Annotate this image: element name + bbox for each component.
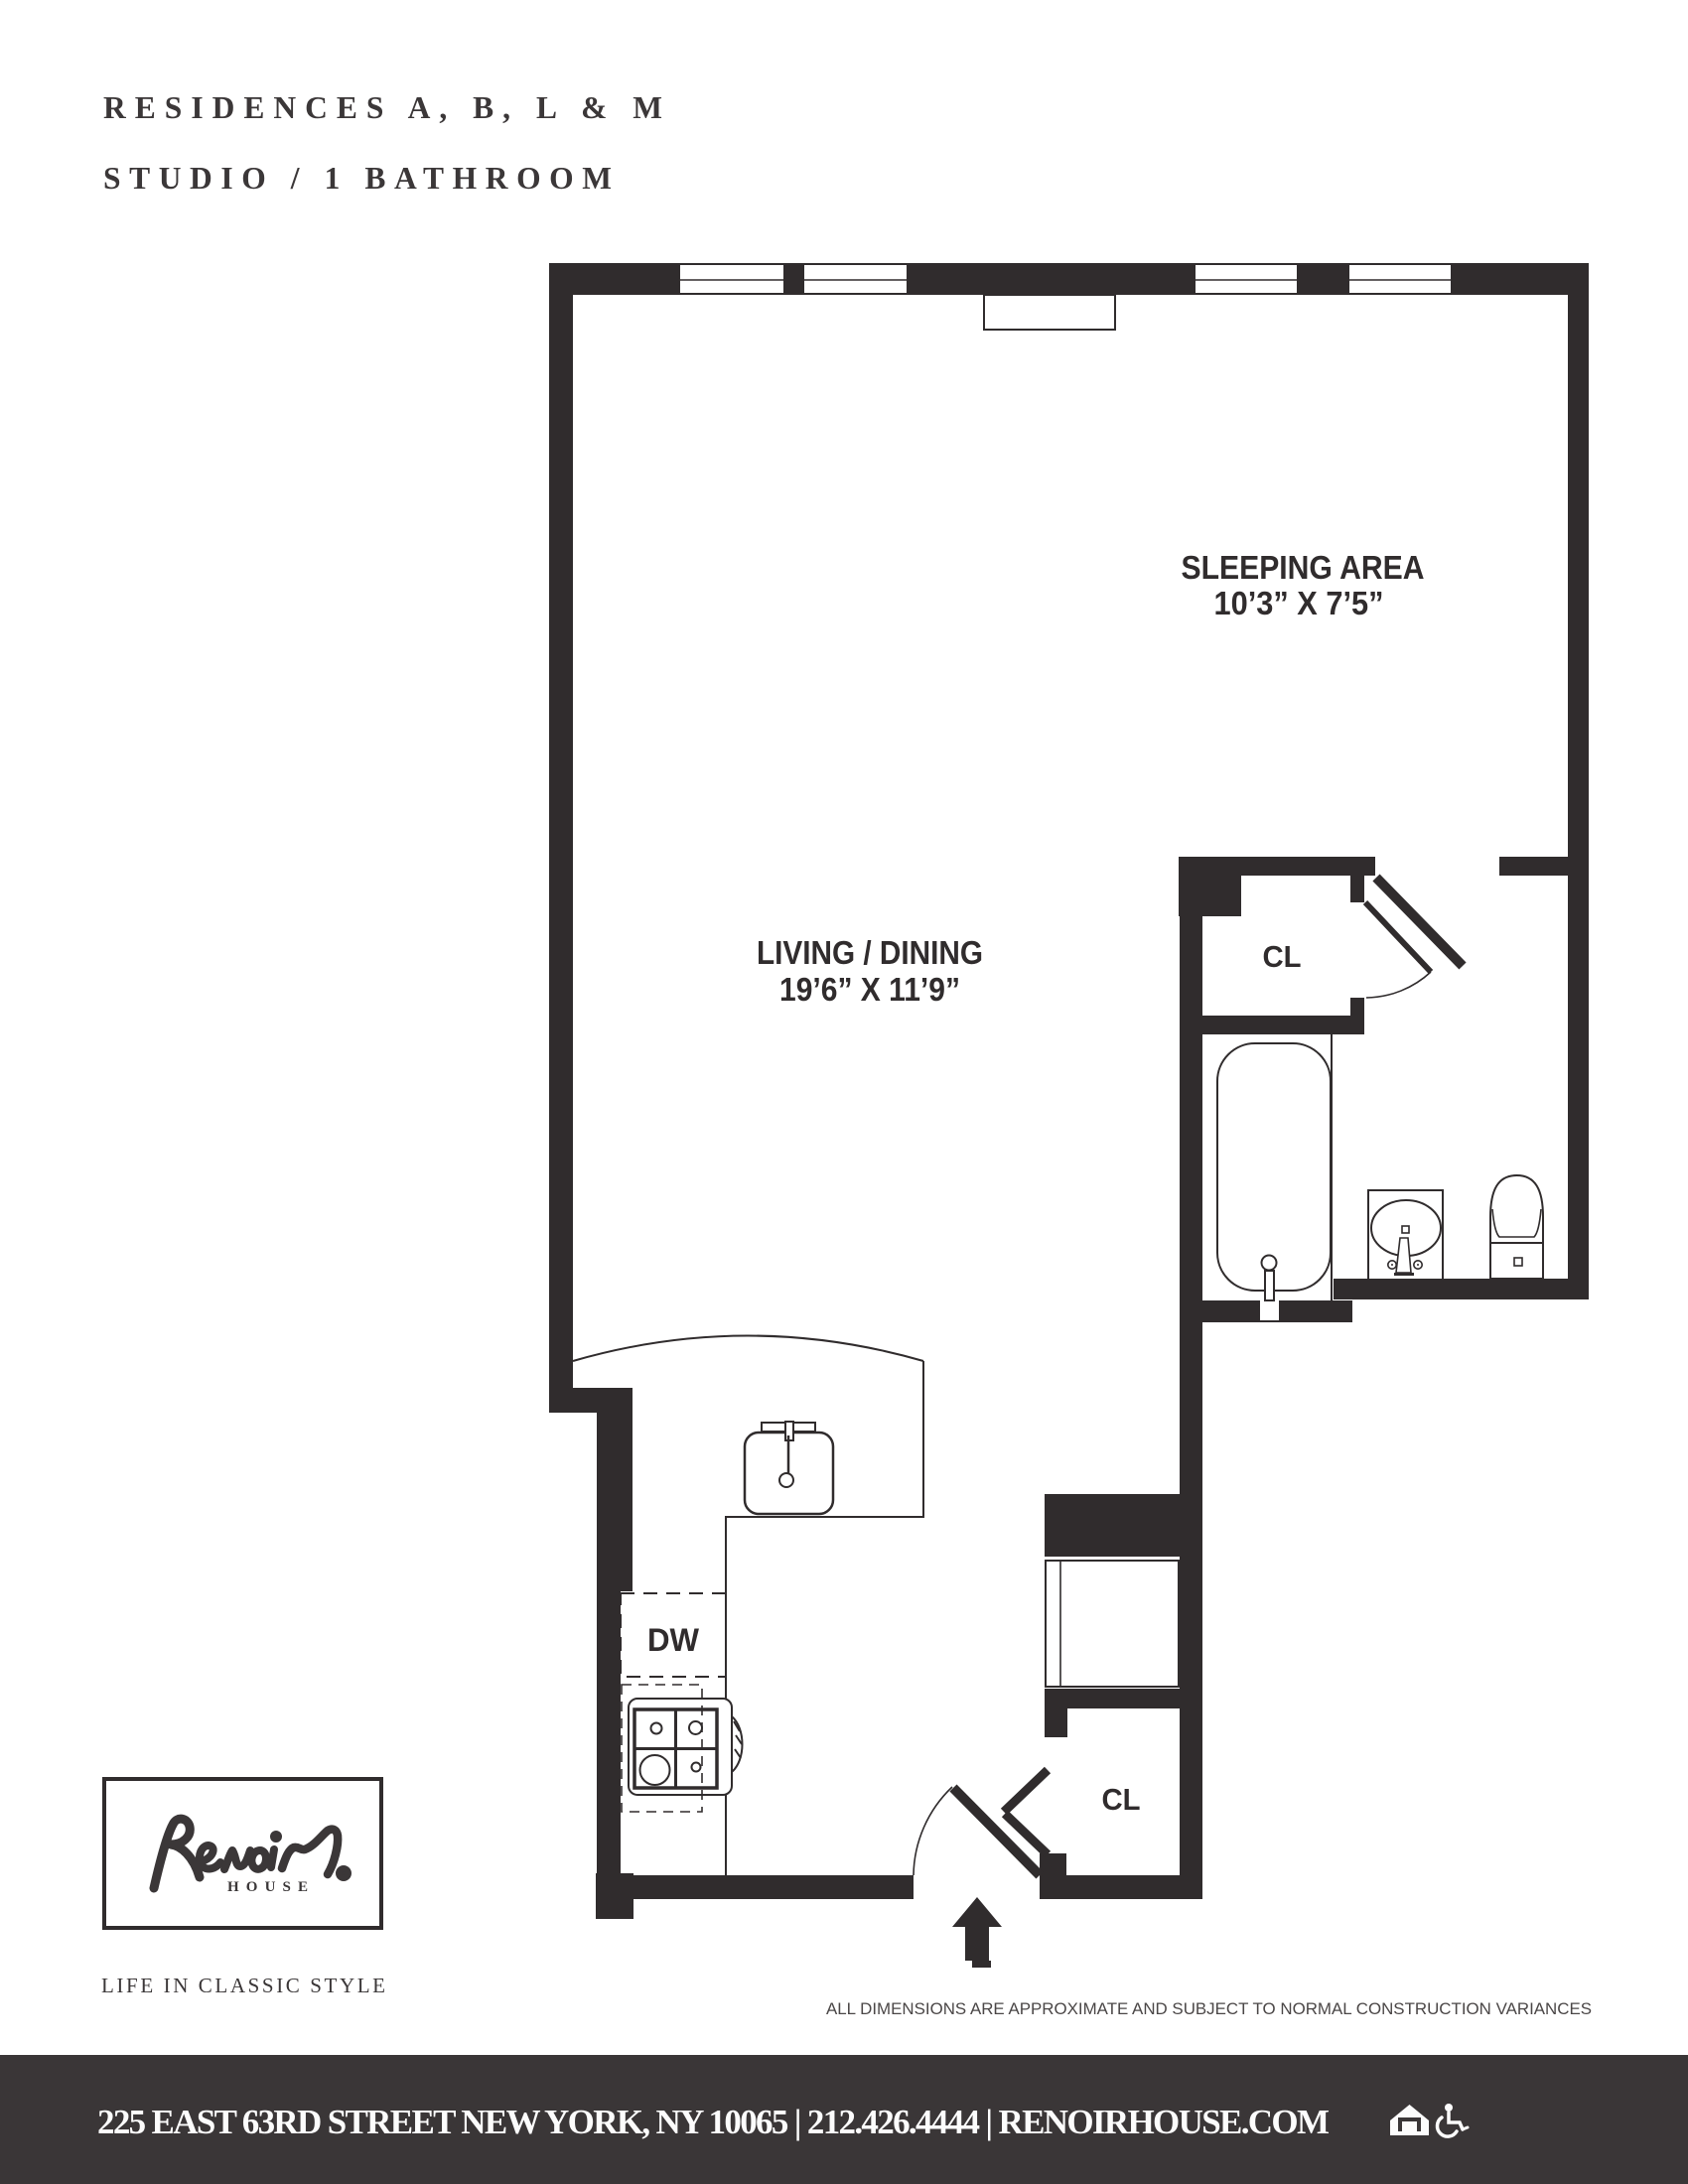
svg-text:DW: DW (647, 1622, 700, 1658)
svg-text:LIVING / DINING: LIVING / DINING (757, 934, 983, 971)
svg-text:RESIDENCES A, B, L & M: RESIDENCES A, B, L & M (103, 90, 662, 125)
svg-text:10’3” X 7’5”: 10’3” X 7’5” (1214, 585, 1384, 621)
svg-text:STUDIO / 1 BATHROOM: STUDIO / 1 BATHROOM (103, 161, 612, 196)
svg-text:LIFE IN CLASSIC STYLE: LIFE IN CLASSIC STYLE (101, 1974, 385, 1997)
svg-text:CL: CL (1102, 1782, 1141, 1817)
svg-text:SLEEPING AREA: SLEEPING AREA (1182, 549, 1425, 586)
svg-text:CL: CL (1263, 939, 1302, 974)
svg-text:225 EAST 63RD STREET NEW YORK,: 225 EAST 63RD STREET NEW YORK, NY 10065 … (97, 2103, 1330, 2141)
svg-text:19’6” X 11’9”: 19’6” X 11’9” (779, 971, 960, 1008)
svg-text:ALL DIMENSIONS ARE APPROXIMATE: ALL DIMENSIONS ARE APPROXIMATE AND SUBJE… (826, 1999, 1592, 2018)
